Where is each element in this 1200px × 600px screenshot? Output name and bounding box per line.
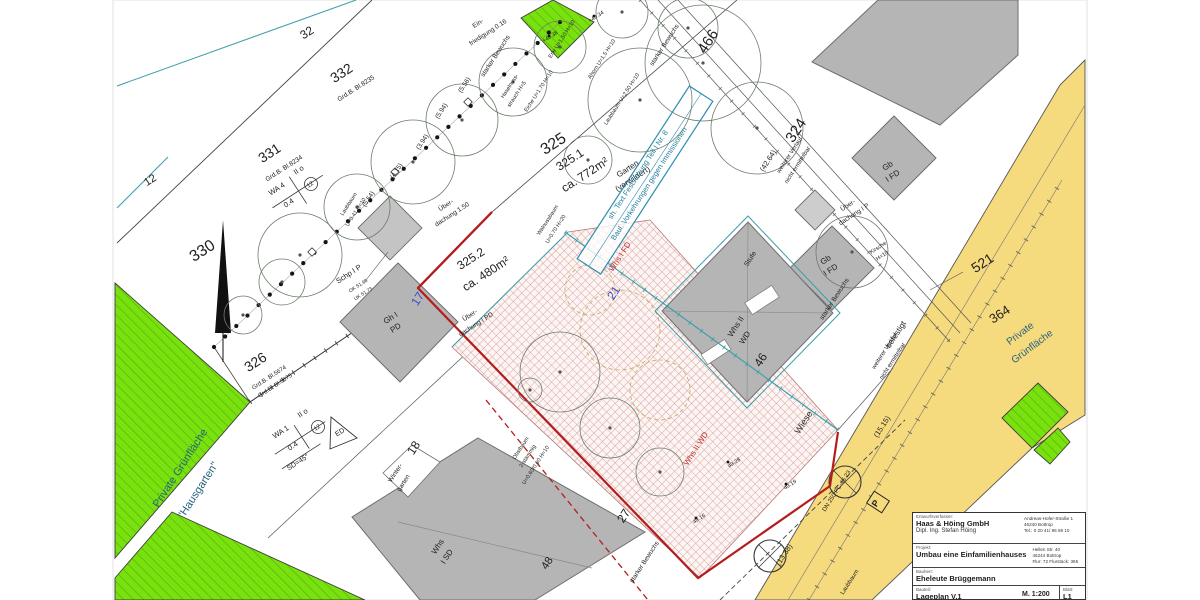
boundary-dot <box>324 240 328 244</box>
part-name: Lageplan V.1 <box>916 592 1016 600</box>
tree-trunk <box>701 61 704 64</box>
tree-trunk <box>658 470 661 473</box>
site-plan-drawing: 330331Grd.B. Bl.8234332Grd.B. Bl.8235321… <box>0 0 1200 600</box>
boundary-dot <box>457 114 461 118</box>
boundary-dot <box>491 83 495 87</box>
project-addr-3: Flur: 72 Flurstück: 365 <box>1032 559 1082 565</box>
boundary-dot <box>413 156 417 160</box>
boundary-dot <box>245 313 249 317</box>
title-block: Entwurfsverfasser: Haas & Höing GmbH Dip… <box>912 512 1086 600</box>
scale-value: M. 1:200 <box>1019 586 1059 600</box>
tree-trunk <box>280 280 283 283</box>
client-name: Eheleute Brüggemann <box>916 574 1082 583</box>
boundary-dot <box>290 272 294 276</box>
tree-trunk <box>411 160 414 163</box>
boundary-dot <box>558 20 562 24</box>
boundary-dot <box>435 135 439 139</box>
project-name: Umbau eine Einfamilienhauses <box>916 550 1026 559</box>
tree-trunk <box>586 158 589 161</box>
designer-name: Haas & Höing GmbH <box>916 519 1018 528</box>
boundary-dot <box>212 345 216 349</box>
boundary-dot <box>424 146 428 150</box>
tree-trunk <box>460 118 463 121</box>
tree-trunk <box>850 250 853 253</box>
sheet-value: L1 <box>1063 592 1082 600</box>
scanned-site-plan-page: 330331Grd.B. Bl.8234332Grd.B. Bl.8235321… <box>0 0 1200 600</box>
boundary-dot <box>513 62 517 66</box>
tree-trunk <box>558 370 561 373</box>
boundary-dot <box>234 324 238 328</box>
boundary-dot <box>446 125 450 129</box>
boundary-dot <box>502 72 506 76</box>
boundary-dot <box>536 41 540 45</box>
boundary-dot <box>301 261 305 265</box>
tree-trunk <box>638 98 641 101</box>
designer-person: Dipl. Ing. Stefan Höing <box>916 528 1018 534</box>
tree-trunk <box>298 253 301 256</box>
designer-addr-3: Tel.: 0 20 41/ 96 69 10 <box>1024 528 1082 534</box>
tree-trunk <box>528 388 531 391</box>
tree-trunk <box>241 313 244 316</box>
boundary-dot <box>223 334 227 338</box>
boundary-dot <box>268 292 272 296</box>
tree-trunk <box>755 126 758 129</box>
tree-trunk <box>608 426 611 429</box>
tree-trunk <box>620 10 623 13</box>
boundary-dot <box>524 51 528 55</box>
tree-trunk <box>686 26 689 29</box>
